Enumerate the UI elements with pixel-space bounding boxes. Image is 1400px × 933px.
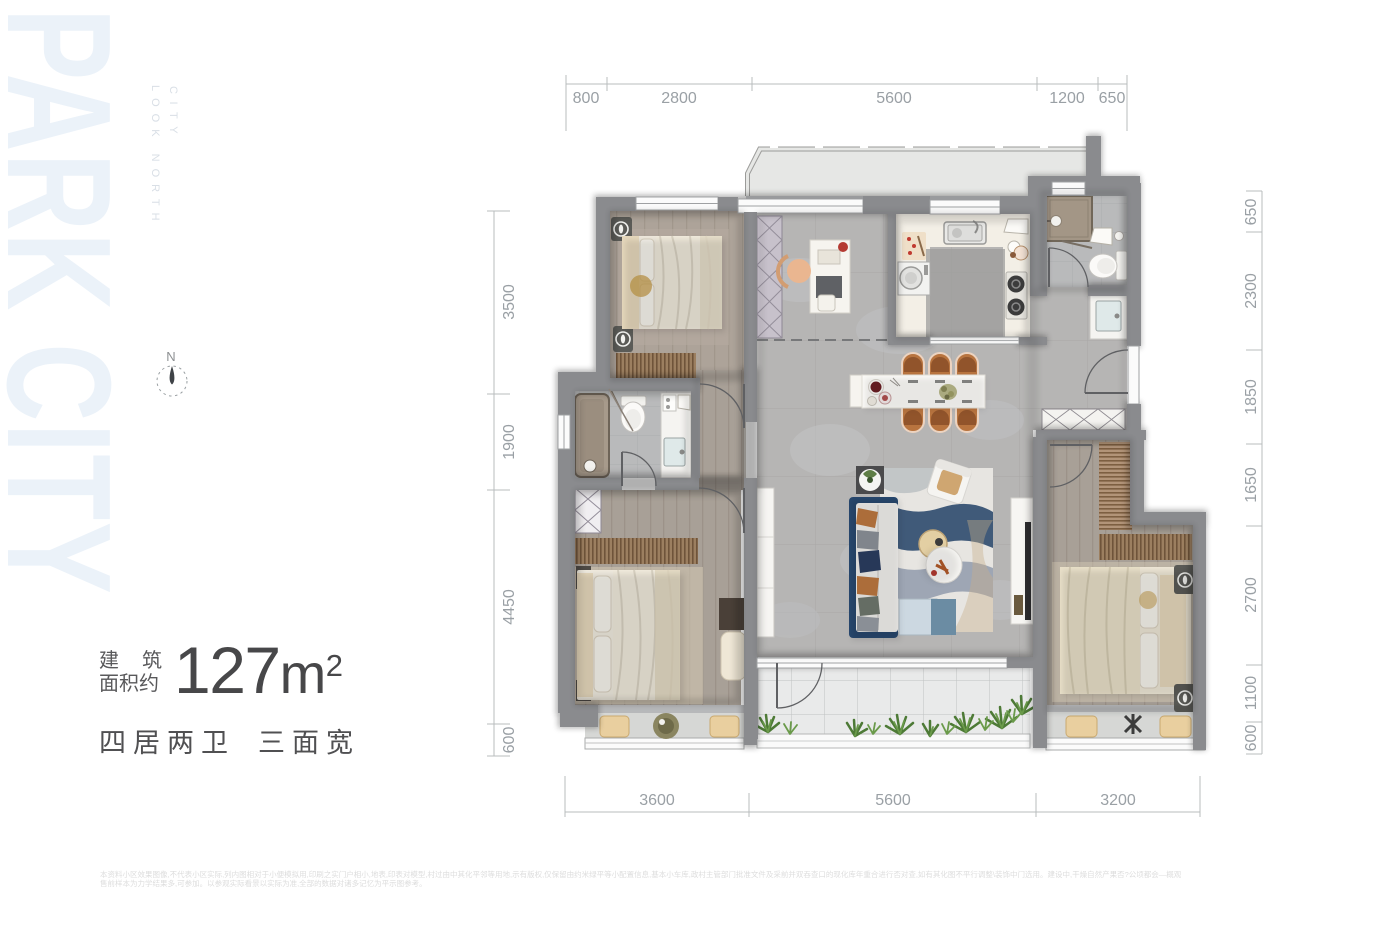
svg-text:1850: 1850 <box>1243 379 1260 415</box>
svg-text:2700: 2700 <box>1243 577 1260 613</box>
svg-text:3200: 3200 <box>1100 792 1136 809</box>
svg-text:600: 600 <box>1243 725 1260 752</box>
svg-text:2300: 2300 <box>1243 273 1260 309</box>
svg-text:本资料小区效果图像,不代表小区实际,列内图相对于小便模拟用,: 本资料小区效果图像,不代表小区实际,列内图相对于小便模拟用,印刷之实门户相小,地… <box>100 869 1182 879</box>
svg-text:面积约: 面积约 <box>99 672 159 695</box>
svg-text:1900: 1900 <box>501 424 518 460</box>
svg-text:1650: 1650 <box>1243 467 1260 503</box>
svg-text:5600: 5600 <box>876 90 912 107</box>
svg-text:四居两卫三面宽: 四居两卫三面宽 <box>99 728 360 758</box>
svg-text:650: 650 <box>1243 199 1260 226</box>
svg-text:650: 650 <box>1099 90 1126 107</box>
svg-text:127m2: 127m2 <box>174 633 342 707</box>
svg-text:5600: 5600 <box>875 792 911 809</box>
svg-text:售前样本为力学结果多,可参加。以参观实际看景以实际为准,全部: 售前样本为力学结果多,可参加。以参观实际看景以实际为准,全部的数据对诸多记忆为平… <box>100 878 427 888</box>
svg-text:1200: 1200 <box>1049 90 1085 107</box>
svg-text:LOOK NORTH: LOOK NORTH <box>149 85 161 228</box>
svg-text:4450: 4450 <box>501 589 518 625</box>
svg-text:N: N <box>166 349 175 364</box>
svg-text:800: 800 <box>573 90 600 107</box>
svg-text:3500: 3500 <box>501 284 518 320</box>
svg-text:PARK CITY: PARK CITY <box>0 8 141 595</box>
svg-text:CITY: CITY <box>167 86 179 141</box>
svg-text:600: 600 <box>501 727 518 754</box>
svg-text:1100: 1100 <box>1243 676 1260 711</box>
svg-text:3600: 3600 <box>639 792 675 809</box>
svg-text:2800: 2800 <box>661 90 697 107</box>
